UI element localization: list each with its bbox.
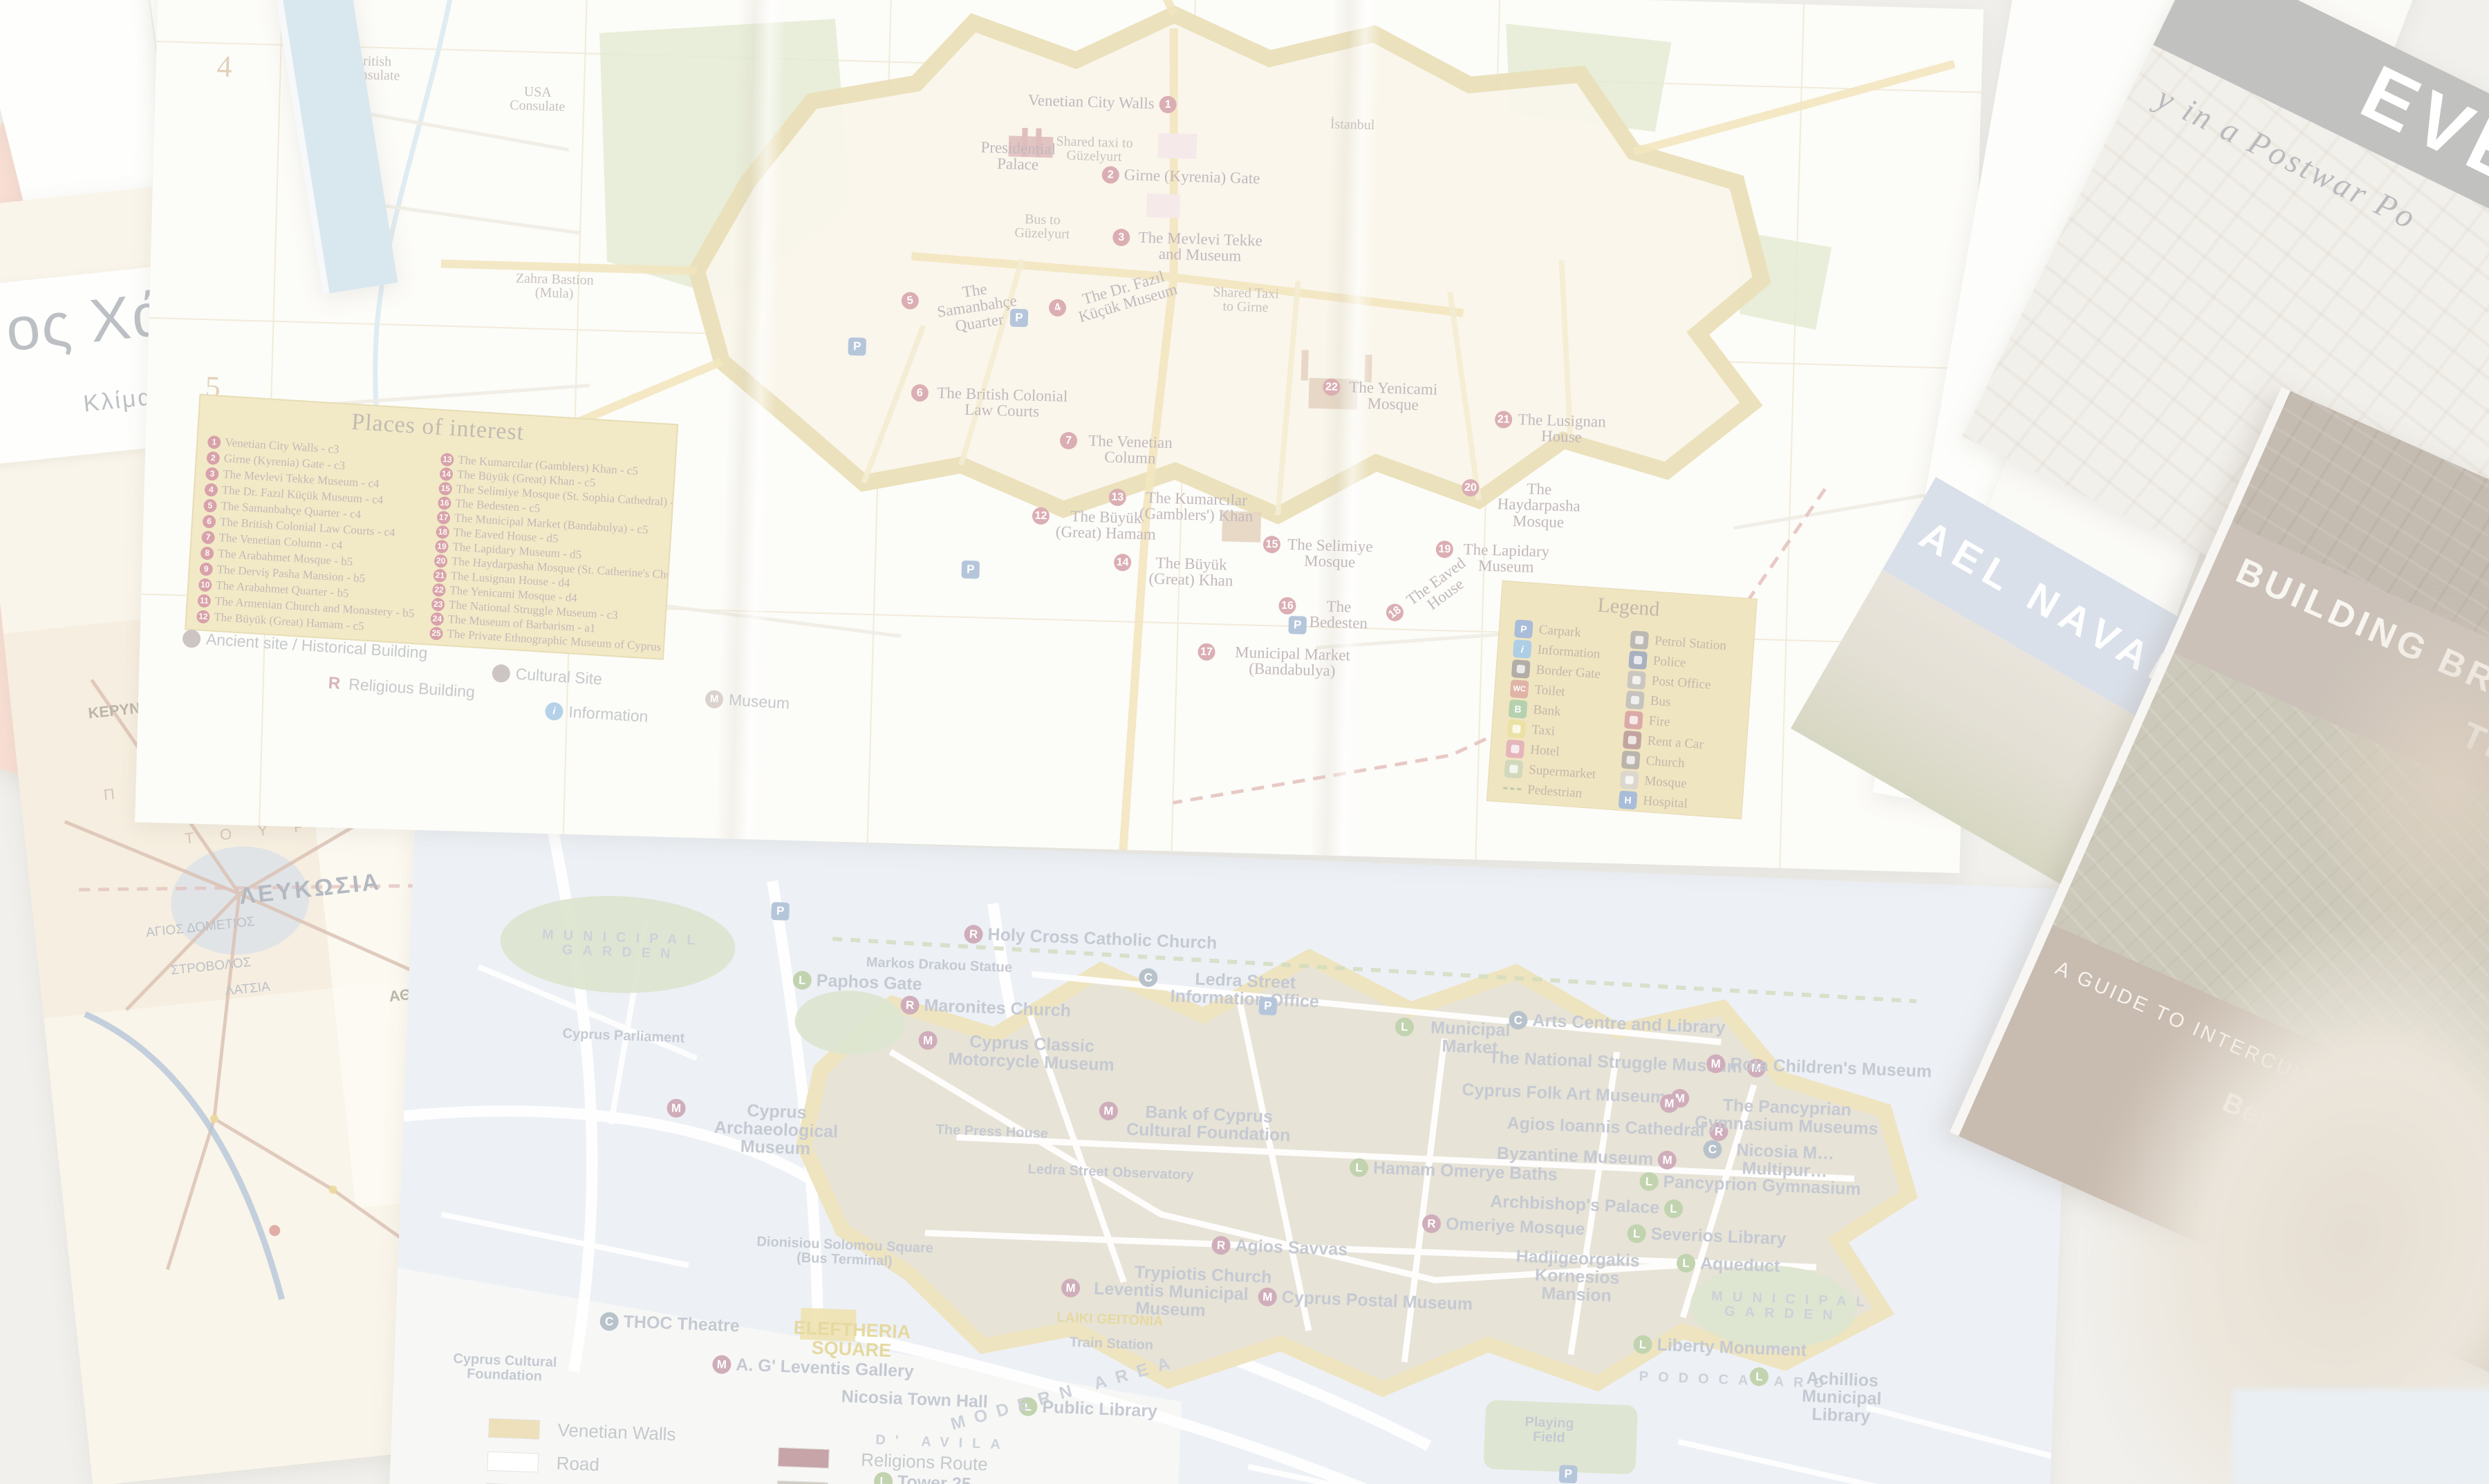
landmark-badge-icon: L [1350, 1158, 1369, 1177]
poi-number-icon: 1 [1159, 95, 1177, 113]
fire-icon [1624, 711, 1643, 730]
book-title-banner: EVE [2153, 0, 2489, 293]
label-yenicami-mosque: 22The Yenicami Mosque [1322, 378, 1442, 414]
label-mevlevi-tekke: 3The Mevlevi Tekke and Museum [1112, 229, 1266, 265]
parking-icon: P [771, 902, 790, 921]
landmark-badge-icon: L [1627, 1224, 1646, 1243]
north-nicosia-city-map: 4 5 Venetian City Walls1 Presidential Pa… [135, 0, 1984, 873]
religious-badge-icon: R [1421, 1214, 1441, 1233]
legend-rent-a-car: Rent a Car [1623, 731, 1704, 754]
venetian-walls-swatch [488, 1418, 540, 1440]
key-museum: MMuseum [705, 689, 790, 713]
rent-a-car-icon [1623, 731, 1642, 750]
label-cyprus-archaeological-museum: MCyprus Archaeological Museum [665, 1098, 864, 1160]
legend-bus: Bus [1625, 691, 1671, 712]
religious-building-icon: R [325, 674, 344, 693]
parking-icon: P [1010, 309, 1029, 328]
landmark-badge-icon: L [1749, 1367, 1769, 1387]
label-usa-consulate: USA Consulate [499, 84, 576, 115]
toilet-icon: WC [1510, 679, 1529, 699]
grid-number-4: 4 [216, 48, 232, 84]
legend-panel: Legend PCarpark iInformation Border Gate… [1486, 581, 1758, 820]
carpark-icon: P [1514, 619, 1534, 639]
poi-number-icon: 15 [1263, 536, 1281, 554]
museum-badge-icon: M [1706, 1054, 1726, 1073]
label-eleftheria-square: ELEFTHERIA SQUARE [785, 1317, 918, 1361]
church-icon [1621, 751, 1641, 770]
culture-badge-icon: C [1703, 1140, 1722, 1159]
key-religious-building: RReligious Building [325, 673, 476, 702]
label-playing-field: Playing Field [1511, 1415, 1588, 1447]
pedestrian-route-icon [1502, 780, 1522, 799]
legend-road: Road [556, 1453, 599, 1476]
hospital-icon: H [1619, 791, 1638, 810]
label-lusignan-house: 21The Lusignan House [1494, 411, 1607, 446]
supermarket-icon [1504, 760, 1523, 779]
label-municipal-garden-west: MUNICIPAL GARDEN [541, 928, 701, 962]
mosque-icon [1620, 771, 1639, 790]
landmark-badge-icon: L [1663, 1199, 1683, 1219]
south-nicosia-city-map: RHoly Cross Catholic Church Markos Drako… [389, 826, 2073, 1484]
information-icon: i [1513, 639, 1532, 659]
religious-badge-icon: R [900, 995, 920, 1015]
museum-badge-icon: M [712, 1355, 731, 1374]
poi-number-icon: 6 [911, 384, 929, 402]
poi-number-icon: 16 [1278, 597, 1296, 615]
label-zahra-bastion: Zahra Bastion (Mula) [509, 271, 599, 301]
label-aqueduct: LAqueduct [1677, 1254, 1780, 1277]
photo-of-nicosia-maps: ος Χάρτης Κλίμακα 1:350000 ΚΕΡΥΝΕΙΑ Π Ε … [0, 0, 2489, 1484]
road-swatch [487, 1452, 539, 1473]
landmark-badge-icon: L [1677, 1254, 1696, 1273]
museum-badge-icon: M [1061, 1278, 1081, 1297]
label-cyprus-classic-motorcycle-museum: MCyprus Classic Motorcycle Museum [917, 1031, 1122, 1074]
bank-icon: B [1509, 699, 1528, 719]
label-presidential-palace: Presidential Palace [973, 139, 1063, 174]
border-gate-icon [1511, 659, 1531, 679]
culture-badge-icon: C [1509, 1011, 1528, 1030]
legend-pedestrian: Pedestrian [1502, 780, 1583, 803]
legend-carpark: PCarpark [1514, 619, 1582, 642]
landmark-badge-icon: L [1395, 1017, 1414, 1037]
label-nicosia-multipurpose: CNicosia M… Multipur… [1702, 1140, 1845, 1181]
landmark-badge-icon: L [792, 970, 812, 990]
legend-police: Police [1628, 650, 1686, 673]
religious-badge-icon: R [1211, 1236, 1231, 1255]
label-shared-taxi-guzelyurt: Shared taxi to Güzelyurt [1052, 134, 1136, 165]
legend-church: Church [1621, 751, 1686, 773]
label-cyprus-cultural-foundation: Cyprus Cultural Foundation [445, 1351, 563, 1384]
legend-mosque: Mosque [1620, 771, 1688, 793]
label-buyuk-khan: 14The Büyük (Great) Khan [1113, 554, 1247, 590]
label-municipal-garden-east: MUNICIPAL GARDEN [1710, 1289, 1856, 1324]
label-achillios-municipal-library: LAchillios Municipal Library [1748, 1367, 1912, 1427]
museum-badge-icon: M [1659, 1093, 1679, 1113]
label-istanbul-street: İstanbul [1330, 117, 1375, 132]
label-hadjigeorgakis-kornesios-mansion: Hadjigeorgakis Kornesios Mansion [1504, 1247, 1651, 1306]
museum-badge-icon: M [1099, 1101, 1118, 1120]
legend-bank: BBank [1509, 699, 1562, 721]
legend-taxi: Taxi [1507, 720, 1556, 741]
landmark-badge-icon: L [874, 1472, 893, 1484]
poi-number-icon: 19 [1436, 541, 1454, 558]
parking-icon: P [848, 337, 866, 356]
bus-icon [1625, 691, 1645, 710]
post-office-icon [1627, 670, 1646, 690]
petrol-station-icon [1630, 630, 1649, 650]
poi-number-icon: 20 [1462, 479, 1480, 497]
label-buyuk-hamam: 12The Büyük (Great) Hamam [1032, 507, 1158, 543]
culture-badge-icon: C [599, 1312, 619, 1331]
label-haydarpasha-mosque: 20The Haydarpasha Mosque [1461, 479, 1595, 532]
label-ledra-street-information-office: CLedra Street Information Office [1138, 968, 1329, 1011]
label-british-colonial-law-courts: 6The British Colonial Law Courts [911, 384, 1072, 421]
parking-icon: P [1559, 1465, 1578, 1483]
legend-hotel: Hotel [1506, 740, 1560, 761]
landmark-badge-icon: L [1639, 1172, 1659, 1191]
poi-number-icon: 3 [1112, 229, 1130, 247]
label-train-station: Train Station [1070, 1335, 1154, 1353]
pale-blue-paper-corner [2233, 1389, 2489, 1484]
information-icon: i [545, 702, 564, 721]
label-bus-guzelyurt: Bus to Güzelyurt [1007, 212, 1077, 242]
legend-hospital: HHospital [1619, 791, 1688, 814]
ancient-site-icon [182, 629, 201, 648]
places-of-interest-panel: Places of interest 1Venetian City Walls … [185, 394, 678, 660]
landmark-badge-icon: L [1633, 1335, 1652, 1354]
museum-icon: M [705, 689, 724, 708]
poi-number-icon: 12 [1032, 507, 1050, 525]
legend-venetian-walls: Venetian Walls [557, 1420, 676, 1446]
hotel-icon [1506, 740, 1525, 759]
religions-route-swatch [778, 1447, 830, 1469]
label-shared-taxi-girne: Shared Taxi to Girne [1207, 285, 1284, 316]
parking-icon: P [961, 561, 980, 579]
police-icon [1628, 650, 1648, 670]
parking-icon: P [1288, 616, 1307, 635]
poi-number-icon: 14 [1114, 554, 1132, 572]
label-bank-of-cyprus-cultural-foundation: MBank of Cyprus Cultural Foundation [1098, 1101, 1296, 1145]
museum-badge-icon: M [666, 1098, 686, 1118]
legend-toilet: WCToilet [1510, 679, 1566, 702]
poi-number-icon: 5 [900, 291, 920, 310]
poi-number-icon: 22 [1323, 378, 1341, 396]
key-cultural-site: Cultural Site [492, 663, 603, 688]
poi-number-icon: 2 [1101, 166, 1119, 184]
label-lapidary-museum: 19The Lapidary Museum [1435, 541, 1555, 576]
museum-badge-icon: M [1658, 1150, 1677, 1170]
religious-badge-icon: R [964, 925, 983, 944]
taxi-icon [1507, 720, 1527, 739]
label-selimiye-mosque: 15The Selimiye Mosque [1262, 536, 1375, 571]
museum-badge-icon: M [1258, 1287, 1277, 1306]
cultural-site-icon [492, 664, 511, 683]
poi-number-icon: 17 [1197, 643, 1215, 661]
label-municipal-market-bandabulya: 17Municipal Market (Bandabulya) [1197, 643, 1365, 680]
legend-fire: Fire [1624, 711, 1670, 732]
label-venetian-column: 7The Venetian Column [1059, 432, 1179, 468]
parking-icon: P [1258, 997, 1277, 1015]
museum-badge-icon: M [918, 1031, 938, 1050]
poi-number-icon: 7 [1060, 432, 1078, 450]
poi-number-icon: 21 [1495, 411, 1513, 429]
poi-number-icon: 13 [1108, 489, 1126, 507]
culture-badge-icon: C [1139, 968, 1158, 987]
